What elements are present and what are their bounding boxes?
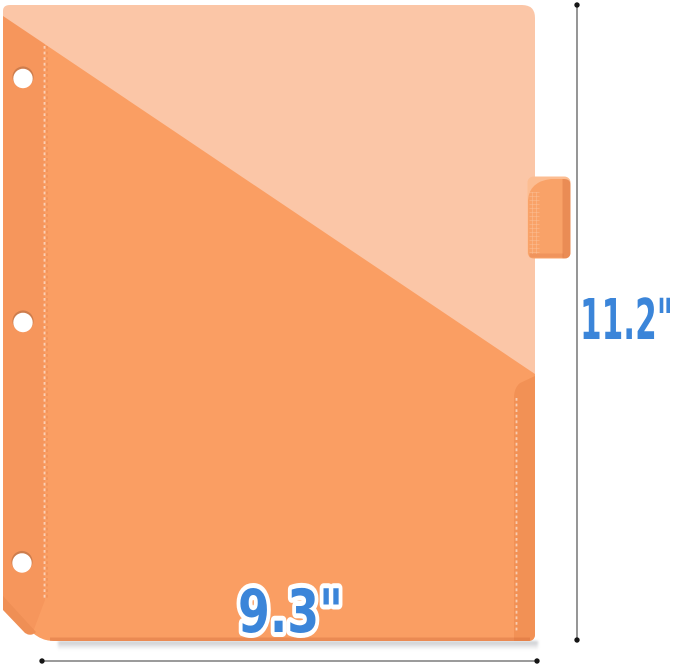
- width-dimension-dot-left: [39, 658, 44, 663]
- product-illustration: 11.2" 9.3": [0, 0, 679, 665]
- height-dimension-dot-bottom: [574, 637, 579, 642]
- divider-dimension-diagram: 11.2" 9.3": [0, 0, 679, 665]
- width-label: 9.3": [238, 577, 343, 647]
- height-dimension: 11.2": [574, 2, 673, 642]
- tab-edge-shade: [563, 179, 571, 259]
- tab-bottom-shade: [530, 254, 564, 258]
- height-dimension-dot-top: [574, 2, 579, 7]
- width-dimension-dot-right: [534, 658, 539, 663]
- index-tab: [528, 177, 571, 259]
- height-label: 11.2": [580, 288, 673, 353]
- tab-mesh-texture: [530, 192, 540, 254]
